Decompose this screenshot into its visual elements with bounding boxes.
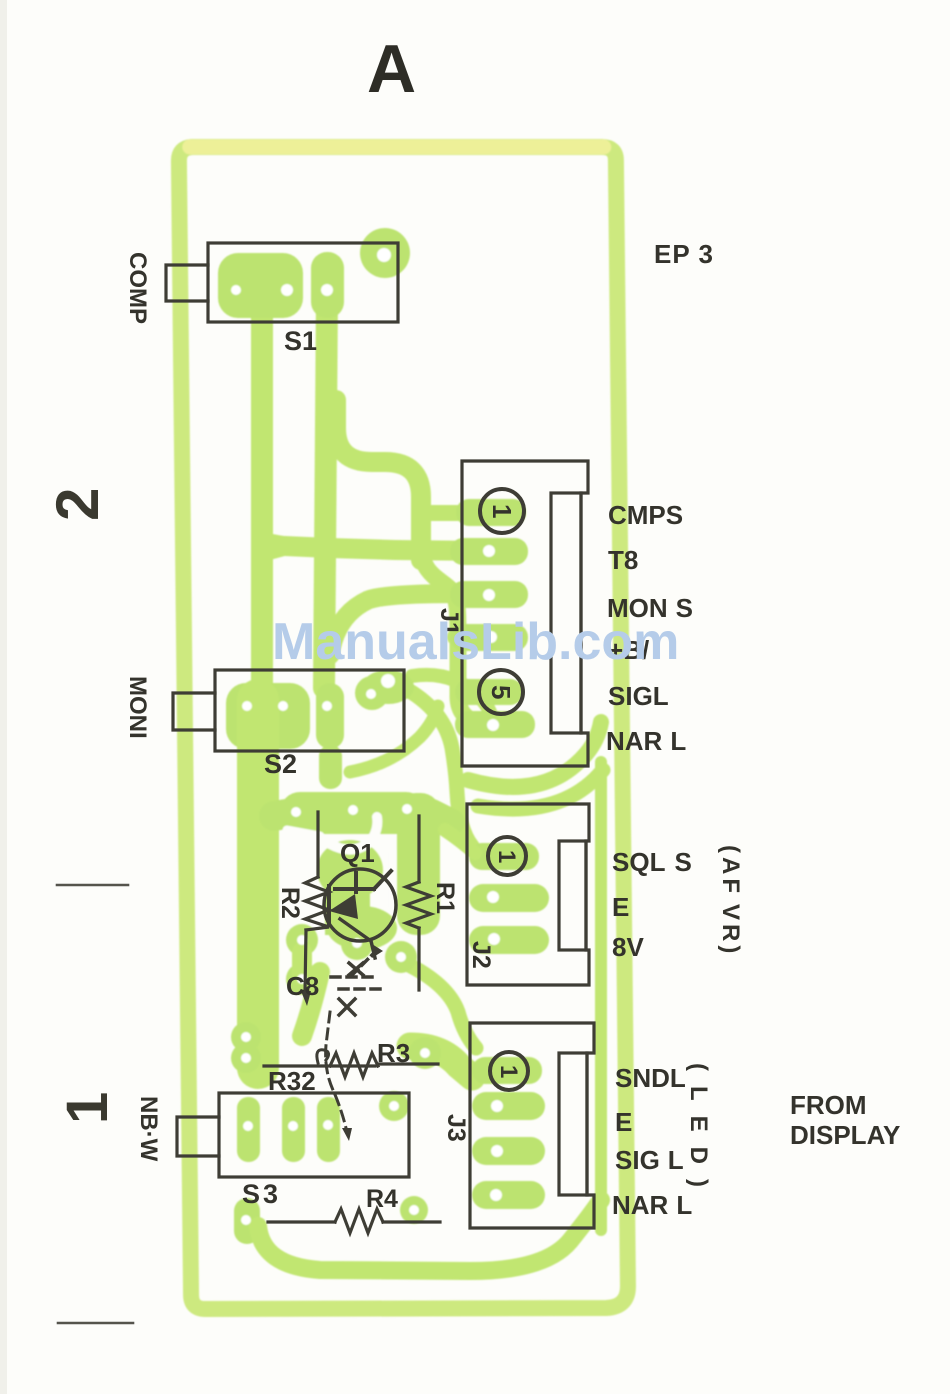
svg-text:SQLS: SQLS: [612, 847, 692, 877]
svg-text:EP 3: EP 3: [654, 239, 714, 269]
svg-text:J3: J3: [442, 1114, 470, 1142]
svg-text:1: 1: [55, 1092, 120, 1124]
svg-text:1: 1: [493, 850, 520, 863]
svg-text:MONI: MONI: [124, 676, 151, 739]
svg-text:DISPLAY: DISPLAY: [790, 1120, 900, 1150]
svg-text:S1: S1: [284, 326, 317, 356]
svg-text:SNDL: SNDL: [615, 1063, 686, 1093]
svg-text:C8: C8: [286, 971, 319, 1001]
svg-text:S3: S3: [242, 1179, 281, 1209]
svg-text:(LED): (LED): [685, 1063, 712, 1202]
svg-text:NB·W: NB·W: [135, 1096, 162, 1162]
svg-text:E: E: [612, 892, 629, 922]
svg-text:R3: R3: [377, 1038, 410, 1068]
svg-text:FROM: FROM: [790, 1090, 867, 1120]
svg-text:J2: J2: [467, 941, 495, 969]
svg-text:R1: R1: [431, 882, 459, 914]
svg-text:Q1: Q1: [340, 838, 375, 868]
svg-text:CMPS: CMPS: [608, 500, 683, 530]
svg-text:SIGL: SIGL: [615, 1145, 684, 1175]
svg-text:T8: T8: [608, 545, 638, 575]
svg-text:1: 1: [487, 504, 517, 518]
svg-text:8V: 8V: [612, 932, 644, 962]
svg-text:5: 5: [486, 685, 516, 699]
svg-text:R4: R4: [366, 1185, 398, 1213]
svg-text:R2: R2: [276, 887, 304, 919]
svg-text:A: A: [367, 31, 416, 107]
svg-text:ManualsLib.com: ManualsLib.com: [272, 613, 679, 671]
svg-text:SIGL: SIGL: [608, 681, 669, 711]
svg-text:2: 2: [44, 488, 111, 521]
svg-text:NARL: NARL: [612, 1190, 692, 1220]
svg-text:NARL: NARL: [606, 726, 686, 756]
svg-text:1: 1: [495, 1065, 522, 1078]
svg-text:COMP: COMP: [124, 252, 151, 324]
svg-text:E: E: [615, 1107, 632, 1137]
svg-text:S2: S2: [264, 749, 297, 779]
svg-text:R32: R32: [268, 1066, 316, 1096]
